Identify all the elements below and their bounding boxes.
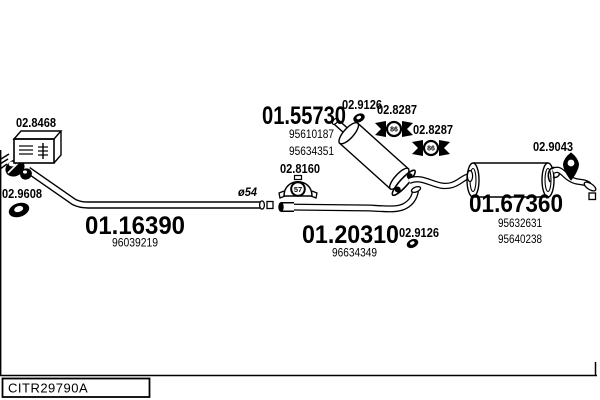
pipe-diameter-label: ø54	[238, 187, 258, 199]
title-block: CITR29790A	[0, 362, 597, 397]
rear-inlet-pipe-drawing	[409, 176, 470, 186]
hanger-b-code[interactable]: 02.8287	[413, 123, 453, 137]
rear-hanger-code[interactable]: 02.9043	[533, 140, 573, 154]
rear-silencer-oem-a: 95632631	[498, 218, 542, 230]
pipe-clamp-icon: 57	[279, 176, 317, 199]
mount-point-marker	[589, 193, 596, 200]
center-silencer-oem-a: 95610187	[289, 129, 334, 141]
reference-label[interactable]: CITR29790A	[8, 381, 88, 396]
front-pipe-code[interactable]: 01.16390	[85, 212, 185, 240]
mid-pipe-oem: 96634349	[332, 248, 377, 260]
front-gasket-icon	[7, 200, 31, 219]
pipe-joint-nub	[267, 202, 273, 209]
mid-gasket-code[interactable]: 02.9126	[399, 226, 439, 240]
center-silencer-code[interactable]: 01.55730	[262, 102, 346, 130]
rear-silencer-oem-b: 95640238	[498, 234, 542, 246]
center-silencer-oem-b: 95634351	[289, 146, 334, 158]
mounting-kit-box-icon	[14, 131, 61, 163]
rubber-hanger-icon-a: 86	[375, 121, 413, 137]
mid-pipe-code[interactable]: 01.20310	[302, 221, 399, 249]
front-pipe-oem: 96039219	[112, 238, 158, 250]
hanger-a-code[interactable]: 02.8287	[377, 103, 417, 117]
hanger-a-size-label: 86	[390, 127, 398, 134]
mounting-kit-code[interactable]: 02.8468	[16, 116, 56, 130]
clamp-size-label: 57	[294, 185, 302, 194]
rubber-hanger-icon-b: 86	[412, 140, 450, 156]
hanger-b-size-label: 86	[427, 146, 435, 153]
pipe-clamp-code[interactable]: 02.8160	[280, 162, 320, 176]
exhaust-system-diagram: 57 86 86 02.8468 02.9608 01.16390 960392…	[0, 0, 600, 400]
rear-silencer-code[interactable]: 01.67360	[469, 190, 563, 218]
front-gasket-code[interactable]: 02.9608	[2, 187, 42, 201]
